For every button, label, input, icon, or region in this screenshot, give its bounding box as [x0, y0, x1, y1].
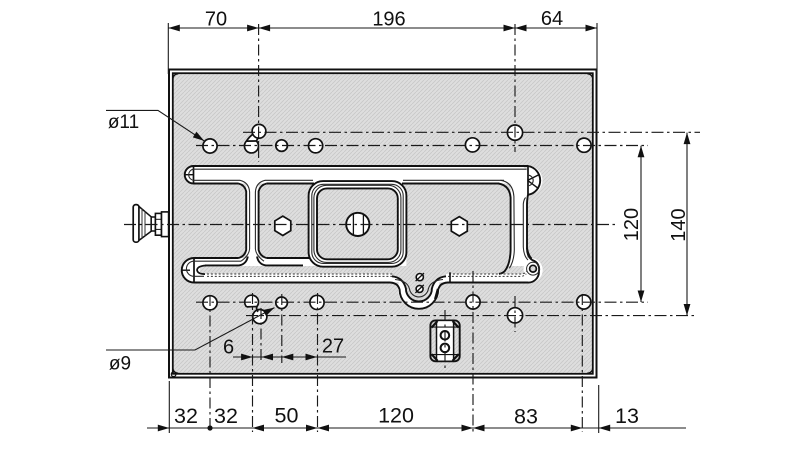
svg-text:ø11: ø11	[108, 112, 139, 133]
svg-text:27: 27	[322, 336, 344, 358]
svg-text:70: 70	[205, 9, 227, 31]
svg-text:120: 120	[378, 404, 414, 428]
svg-text:ø9: ø9	[109, 354, 131, 375]
svg-text:6: 6	[223, 337, 234, 359]
svg-text:50: 50	[275, 404, 299, 428]
svg-text:64: 64	[541, 8, 563, 30]
svg-text:32: 32	[174, 404, 198, 428]
svg-text:13: 13	[615, 404, 639, 428]
svg-text:196: 196	[372, 9, 405, 31]
svg-text:120: 120	[621, 208, 643, 241]
svg-text:140: 140	[668, 208, 690, 241]
svg-text:83: 83	[514, 405, 538, 429]
svg-text:32: 32	[214, 404, 238, 428]
